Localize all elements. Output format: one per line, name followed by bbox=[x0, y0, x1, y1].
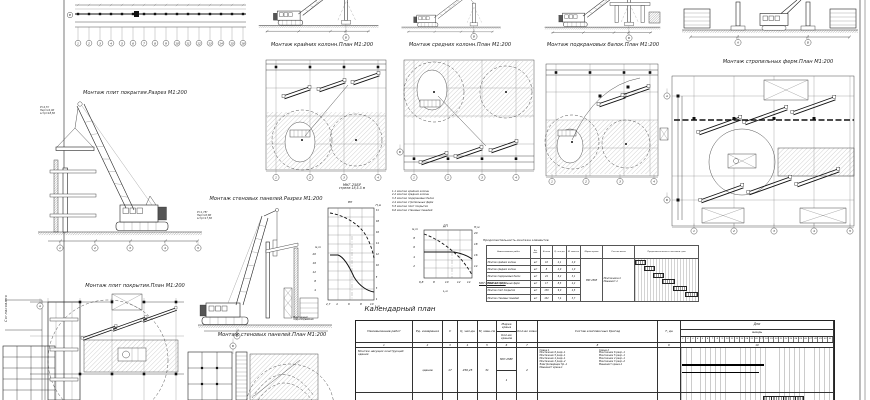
axis-number: 9 bbox=[165, 41, 167, 45]
plan-edge-columns bbox=[266, 60, 386, 172]
duration-table-title: Продолжительность монтажа элементов bbox=[483, 238, 549, 242]
axis-number: 11 bbox=[186, 41, 190, 45]
t1-gantt-bar bbox=[662, 279, 675, 284]
work-name-cell: Монтаж несущих конструкций здания bbox=[356, 348, 413, 393]
graph-x-tick: 14 bbox=[467, 280, 471, 284]
caption-section-middle-columns: Монтаж средних колонн.План М1:200 bbox=[409, 42, 511, 48]
caption-section-crane-beams: Монтаж подкрановых балок.План М1:200 bbox=[547, 42, 659, 48]
axis-number: 5 bbox=[849, 229, 851, 233]
m-cell: 31 bbox=[478, 348, 497, 393]
axis-number: 4 bbox=[515, 176, 517, 180]
kalendar-plan-table: Наименование работ Ед. измерения V Q, че… bbox=[355, 320, 835, 400]
graph-tick: 2 bbox=[407, 264, 415, 274]
axis-number: В bbox=[473, 35, 475, 39]
empty-cell bbox=[497, 393, 517, 400]
t1-cell: шт bbox=[531, 266, 541, 273]
axis-number: 2 bbox=[585, 180, 587, 184]
kalendar-header-crane: Марка крана Кол-во кранов bbox=[497, 321, 517, 343]
t1-header: Кол-во bbox=[541, 246, 553, 259]
crew-cell: Смена 1 Монтажник 6 разр.-1 Монтажник 5 … bbox=[538, 348, 658, 393]
axis-number: Б bbox=[628, 36, 630, 40]
graph-x-tick: 10 bbox=[370, 302, 374, 306]
t1-cell: 4,2 bbox=[567, 280, 581, 287]
t1-cell: 8,5 bbox=[553, 280, 567, 287]
graph-x-tick: 4 bbox=[336, 302, 338, 306]
drawing-sheet: 12345678910111213141516В bbox=[0, 0, 870, 400]
unit-cell: здание bbox=[413, 348, 443, 393]
plan-wall-panels bbox=[188, 349, 334, 400]
v-cell: 17 bbox=[443, 348, 458, 393]
t1-cell: 6,2 bbox=[553, 273, 567, 280]
empty-cell bbox=[458, 393, 478, 400]
kalendar-header-v: V bbox=[443, 321, 458, 343]
t1-header: Состав звена bbox=[603, 246, 635, 259]
axis-number: Б bbox=[399, 150, 401, 154]
caption-roof-slabs-plan: Монтаж плит покрытия.План М1:200 bbox=[85, 283, 185, 289]
graph-tick: 14 bbox=[376, 241, 386, 252]
t1-cell: Монтаж подкрановых балок bbox=[487, 273, 531, 280]
axis-number: 5 bbox=[197, 246, 199, 250]
axis-number: 4 bbox=[813, 229, 815, 233]
axis-number: 1 bbox=[693, 229, 695, 233]
axis-letter: В bbox=[69, 13, 71, 17]
axis-number: 6 bbox=[132, 41, 134, 45]
t1-cell: Монтаж стеновых панелей bbox=[487, 294, 531, 301]
axis-number: 7 bbox=[143, 41, 145, 45]
t1-cell: 7,4 bbox=[553, 294, 567, 301]
t1-header: М, маш-см bbox=[567, 246, 581, 259]
graph-tick: 16 bbox=[307, 261, 316, 270]
t1-header: Наименование работ bbox=[487, 246, 531, 259]
t1-cell: 17 bbox=[541, 280, 553, 287]
axis-number: 1 bbox=[59, 246, 61, 250]
t1-cell: 8 bbox=[541, 266, 553, 273]
t1-cell: 1,0 bbox=[567, 266, 581, 273]
axis-number: 2 bbox=[309, 176, 311, 180]
left-graph-g-axis-label: G,m bbox=[315, 245, 321, 249]
axis-number: А bbox=[665, 94, 668, 98]
graph-tick: 6 bbox=[376, 286, 386, 297]
t1-cell: Монтаж плит покрытия bbox=[487, 287, 531, 294]
kalendar-header-crane-mark: Марка крана bbox=[497, 321, 516, 332]
axis-number: А bbox=[736, 41, 739, 45]
t1-cell: 3,1 bbox=[567, 273, 581, 280]
kalendar-data-row: Монтаж несущих конструкций здания здание… bbox=[356, 348, 834, 393]
graph-tick-column: 20161284 bbox=[307, 252, 316, 297]
kalendar-days-label: Дни bbox=[681, 321, 833, 330]
t1-cell: 136 bbox=[541, 287, 553, 294]
t1-gantt-bar bbox=[644, 266, 655, 271]
caption-roof-slabs-section: Монтаж плит покрытия.Разрез М1:200 bbox=[83, 90, 187, 96]
axis-number: 3 bbox=[343, 176, 345, 180]
axis-number: 16 bbox=[241, 41, 245, 45]
crane-cell: МКГ-25БР 1 bbox=[497, 348, 517, 393]
right-graph-x-axis-label: L,м bbox=[443, 289, 448, 293]
graph-tick: 20 bbox=[474, 231, 483, 242]
t1-header: Ед. изм. bbox=[531, 246, 541, 259]
graph-dp-label: ДП bbox=[443, 224, 448, 228]
gantt-bar-next bbox=[763, 396, 804, 400]
axis-number: 3 bbox=[619, 180, 621, 184]
axis-number: 2 bbox=[733, 229, 735, 233]
graph-x-tick: 8 bbox=[360, 302, 362, 306]
t1-header: Продолжительность монтажа, дни bbox=[635, 246, 699, 259]
t1-gantt-bar bbox=[673, 286, 687, 291]
graph-tick: 4 bbox=[376, 297, 386, 308]
graph-tick: 20 bbox=[307, 252, 316, 261]
graph-tick: 4 bbox=[307, 288, 316, 297]
left-graph-h-axis-label: Н,м bbox=[376, 203, 381, 207]
t1-cell: шт bbox=[531, 280, 541, 287]
t1-cell: 3,7 bbox=[567, 294, 581, 301]
empty-cell bbox=[356, 393, 413, 400]
axis-number: 5 bbox=[121, 41, 123, 45]
graph-title-block: МКГ-25БР стрела 18,5-5 м bbox=[330, 183, 374, 191]
axis-number: 1 bbox=[77, 41, 79, 45]
duration-table: Наименование работ Ед. изм. Кол-во Q, че… bbox=[486, 245, 698, 302]
caption-wall-panels-plan: Монтаж стеновых панелей.План М1:200 bbox=[218, 332, 327, 338]
axis-number: Б bbox=[345, 36, 347, 40]
kalendar-next-row bbox=[356, 393, 834, 400]
t1-header: Марка крана bbox=[581, 246, 603, 259]
graph-crane-subtitle: стрела 18,5-5 м bbox=[330, 187, 374, 191]
plan-roof-slabs bbox=[30, 294, 184, 400]
kalendar-header-unit: Ед. измерения bbox=[413, 321, 443, 343]
crane-mark-value: МКГ-25БР bbox=[497, 350, 516, 371]
axis-number: Б bbox=[666, 198, 668, 202]
graph-tick: 6 bbox=[407, 245, 415, 255]
caption-section-roof-trusses: Монтаж стропильных ферм.План М1:200 bbox=[723, 59, 834, 65]
kalendar-header-row: Наименование работ Ед. измерения V Q, че… bbox=[356, 321, 834, 343]
graph-tick: 4 bbox=[407, 255, 415, 265]
overall-grid-plan: 12345678910111213141516В bbox=[67, 4, 246, 46]
axis-number: 4 bbox=[164, 246, 166, 250]
axis-number: 3 bbox=[99, 41, 101, 45]
t1-cell: 16 bbox=[541, 259, 553, 266]
kalendar-header-t: Т, дн bbox=[658, 321, 681, 343]
empty-cell bbox=[658, 393, 681, 400]
kalendar-header-name: Наименование работ bbox=[356, 321, 413, 343]
graph-tick: 8 bbox=[376, 275, 386, 286]
right-graph-h-axis-label: Н,м bbox=[474, 225, 479, 229]
t1-cell: Монтаж крайних колонн bbox=[487, 259, 531, 266]
crane-count-value: 1 bbox=[497, 371, 516, 391]
kalendar-header-crew: Состав комплексных бригад bbox=[538, 321, 658, 343]
graph-tick: 14 bbox=[474, 264, 483, 275]
crew-shift1: Смена 1 Монтажник 6 разр.-1 Монтажник 5 … bbox=[538, 348, 598, 392]
graph-tick: 12 bbox=[307, 270, 316, 279]
t1-cell: шт bbox=[531, 294, 541, 301]
shifts-cell: 2 bbox=[517, 348, 538, 393]
graph-tick-column: 211816141210864 bbox=[376, 208, 386, 309]
empty-cell bbox=[478, 393, 497, 400]
right-graph-g-axis-label: G,m bbox=[412, 227, 418, 231]
axis-number: 1 bbox=[275, 176, 277, 180]
t1-cell: 102 bbox=[541, 294, 553, 301]
crew-shift2: Смена 2 Монтажник 6 разр.-1 Монтажник 5 … bbox=[598, 348, 658, 392]
empty-cell bbox=[538, 393, 658, 400]
empty-cell bbox=[443, 393, 458, 400]
gantt-days-cell-2 bbox=[681, 393, 834, 400]
axis-number: Б bbox=[807, 41, 809, 45]
graph-tick-column: 8642 bbox=[407, 236, 415, 274]
axis-number: 14 bbox=[219, 41, 223, 45]
hoist-label: Монтажный гидроподъемник bbox=[293, 316, 333, 322]
graph-tick: 18 bbox=[376, 219, 386, 230]
graph-x-tick: 6,8 bbox=[419, 280, 423, 284]
graph-tick: 12 bbox=[376, 252, 386, 263]
t1-cell: Монтаж средних колонн bbox=[487, 266, 531, 273]
kalendar-header-crane-count: Кол-во кранов bbox=[497, 332, 516, 342]
graph-tick-column: 20181614 bbox=[474, 231, 483, 275]
t1-cell: 4,1 bbox=[553, 259, 567, 266]
gantt-bar-shift1 bbox=[682, 364, 764, 366]
plan-crane-beams bbox=[545, 64, 668, 178]
graph-tick: 8 bbox=[307, 279, 316, 288]
load-capacity-graphs bbox=[328, 208, 472, 300]
day-label: 31 bbox=[828, 337, 833, 343]
crane2-parameters-note: Р=1,75т Нкр=10,80 Lстр=17,50 bbox=[197, 211, 212, 221]
t1-cell: Монтаж стропильных ферм bbox=[487, 280, 531, 287]
axis-number: 4 bbox=[110, 41, 112, 45]
axis-number: 3 bbox=[773, 229, 775, 233]
axis-number: 1 bbox=[413, 176, 415, 180]
graph-legend: 1-1 монтаж крайних колонн2-2 монтаж сред… bbox=[392, 190, 434, 213]
t1-gantt bbox=[635, 259, 699, 302]
axis-number: 3 bbox=[129, 246, 131, 250]
crane1-parameters-note: Р=2,5т Нкр=12,00 Lстр=18,50 bbox=[40, 106, 55, 116]
kalendar-days-strip: 1234567891011121314151617181920212223242… bbox=[681, 337, 833, 343]
crane-sections bbox=[259, 0, 858, 38]
approval-stamp-text: Согласовано bbox=[4, 295, 8, 322]
t1-cell: шт bbox=[531, 273, 541, 280]
axis-number: 2 bbox=[94, 246, 96, 250]
axis-number: 4 bbox=[377, 176, 379, 180]
t1-cell: 2,0 bbox=[553, 266, 567, 273]
t1-cell: 24 bbox=[541, 273, 553, 280]
t1-cell: 2,0 bbox=[567, 259, 581, 266]
empty-cell bbox=[517, 393, 538, 400]
caption-wall-panels-section: Монтаж стеновых панелей.Разрез М1:200 bbox=[209, 196, 322, 202]
graph-tick: 16 bbox=[474, 253, 483, 264]
graph-x-tick: 8 bbox=[433, 280, 435, 284]
empty-cell bbox=[413, 393, 443, 400]
kalendar-header-shifts: Кол-во смен bbox=[517, 321, 538, 343]
caption-section-edge-columns: Монтаж крайних колонн.План М1:200 bbox=[271, 42, 373, 48]
graph-x-tick: 6 bbox=[348, 302, 350, 306]
t1-crew: Монтажники-4 Машинист-1 bbox=[603, 259, 635, 302]
axis-number: Б bbox=[232, 344, 234, 348]
gantt-days-cell bbox=[681, 348, 834, 393]
graph-tick: 21 bbox=[376, 208, 386, 219]
kalendar-header-q: Q, чел-дн bbox=[458, 321, 478, 343]
graph-tick: 18 bbox=[474, 242, 483, 253]
t1-row: Монтаж крайних колонншт164,12,0МКГ-25БРМ… bbox=[487, 259, 699, 266]
axis-number: 2 bbox=[447, 176, 449, 180]
plan-middle-columns bbox=[404, 60, 534, 172]
axis-number: 8 bbox=[154, 41, 156, 45]
plan-roof-trusses bbox=[672, 76, 854, 228]
axis-number: 15 bbox=[230, 41, 234, 45]
axis-number: 12 bbox=[197, 41, 201, 45]
axis-number: 13 bbox=[208, 41, 212, 45]
t1-cell: 4,5 bbox=[567, 287, 581, 294]
section-roof-slabs-crane bbox=[38, 102, 202, 243]
legend-item: 6-6 монтаж стеновых панелей bbox=[392, 209, 434, 213]
t1-crane-mark: МКГ-25БР bbox=[581, 259, 603, 302]
t1-cell: 9,0 bbox=[553, 287, 567, 294]
graph-vp-label: ВП bbox=[348, 200, 352, 204]
gantt-bar-shift2 bbox=[682, 372, 759, 374]
axis-number: 1 bbox=[551, 180, 553, 184]
kalendar-month-label: январь bbox=[681, 330, 833, 337]
graph-tick: 8 bbox=[407, 236, 415, 246]
axis-number: 10 bbox=[175, 41, 179, 45]
t1-header: Q, чел-дн bbox=[553, 246, 567, 259]
graph-tick: 10 bbox=[376, 263, 386, 274]
kalendar-header-m: М, маш-см bbox=[478, 321, 497, 343]
axis-number: А bbox=[38, 304, 41, 308]
axis-number: 2 bbox=[88, 41, 90, 45]
graph-x-tick: 2,7 bbox=[326, 302, 330, 306]
axis-number: 4 bbox=[653, 180, 655, 184]
axis-number: 3 bbox=[481, 176, 483, 180]
t1-cell: шт bbox=[531, 259, 541, 266]
t1-cell: шт bbox=[531, 287, 541, 294]
q-cell: 256,25 bbox=[458, 348, 478, 393]
t1-gantt-bar bbox=[685, 292, 698, 297]
t1-gantt-bar bbox=[635, 260, 646, 265]
duration-table-header-row: Наименование работ Ед. изм. Кол-во Q, че… bbox=[487, 246, 699, 259]
t-cell bbox=[658, 348, 681, 393]
graph-x-tick: 10 bbox=[445, 280, 449, 284]
t1-gantt-bar bbox=[653, 273, 664, 278]
kalendar-header-days: Дни январь 12345678910111213141516171819… bbox=[681, 321, 834, 343]
graph-tick: 16 bbox=[376, 230, 386, 241]
graph-x-tick: 12 bbox=[457, 280, 461, 284]
